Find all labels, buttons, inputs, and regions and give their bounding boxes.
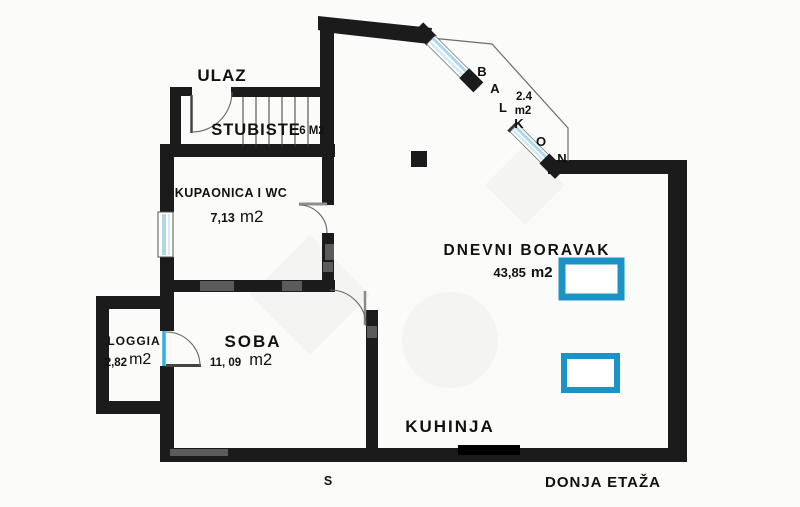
bathroom-label: KUPAONICA I WC — [175, 186, 288, 200]
loggia-left-wall — [96, 296, 109, 414]
bathroom-window — [158, 212, 173, 257]
svg-text:N: N — [557, 151, 566, 166]
stair-top-stub — [170, 87, 192, 96]
living-room-area: 43,85m2 — [493, 264, 552, 281]
kitchen-label: KUHINJA — [405, 417, 495, 436]
stair-top-wall — [231, 87, 334, 97]
balcony-area: 2.4 — [516, 91, 533, 103]
loggia-door — [164, 331, 201, 366]
left-wall-upper — [160, 146, 174, 212]
bathroom-top-wall — [160, 144, 335, 157]
upper-west-wall — [320, 30, 334, 156]
svg-text:K: K — [514, 116, 524, 131]
walls — [96, 16, 687, 462]
floor-plan: ULAZ STUBISTE 6 M2 KUPAONICA I WC 7,13m2… — [0, 0, 800, 507]
pillar — [411, 151, 427, 167]
bathroom-bottom-wall — [160, 280, 335, 292]
bottom-wall-dark-segment — [458, 445, 520, 455]
floor-title: DONJA ETAŽA — [545, 473, 661, 491]
balcony-area-unit: m2 — [515, 105, 532, 117]
room-label: SOBA — [224, 332, 281, 351]
bathroom-right-wall-upper — [322, 157, 334, 205]
loggia-label: LOGGIA — [107, 334, 160, 348]
bathroom-area: 7,13m2 — [211, 207, 264, 226]
room-area: 11, 09m2 — [210, 351, 272, 369]
top-sloped-wall — [318, 16, 432, 44]
bathroom-door — [299, 204, 327, 233]
compass-label: S — [324, 474, 332, 488]
balcony-bottom-wall — [548, 160, 687, 174]
furniture-table-1 — [562, 261, 621, 297]
loggia-area: 2,82m2 — [105, 351, 152, 369]
loggia-bottom-wall — [96, 401, 162, 414]
entrance-label: ULAZ — [197, 66, 246, 85]
svg-text:L: L — [499, 100, 507, 115]
left-wall-lower — [160, 366, 174, 462]
living-room-label: DNEVNI BORAVAK — [444, 242, 611, 259]
svg-text:O: O — [536, 134, 546, 149]
right-wall — [668, 160, 687, 462]
balcony-window-upper — [413, 22, 483, 92]
furniture-table-2 — [564, 356, 617, 390]
floor-plan-page: ULAZ STUBISTE 6 M2 KUPAONICA I WC 7,13m2… — [0, 0, 800, 507]
svg-text:B: B — [477, 64, 486, 79]
bottom-wall — [160, 448, 687, 462]
svg-text:A: A — [490, 81, 500, 96]
staircase-area: 6 M2 — [299, 125, 325, 137]
loggia-top-wall — [96, 296, 162, 309]
left-wall-middle — [160, 257, 174, 331]
staircase-label: STUBISTE — [211, 121, 301, 139]
